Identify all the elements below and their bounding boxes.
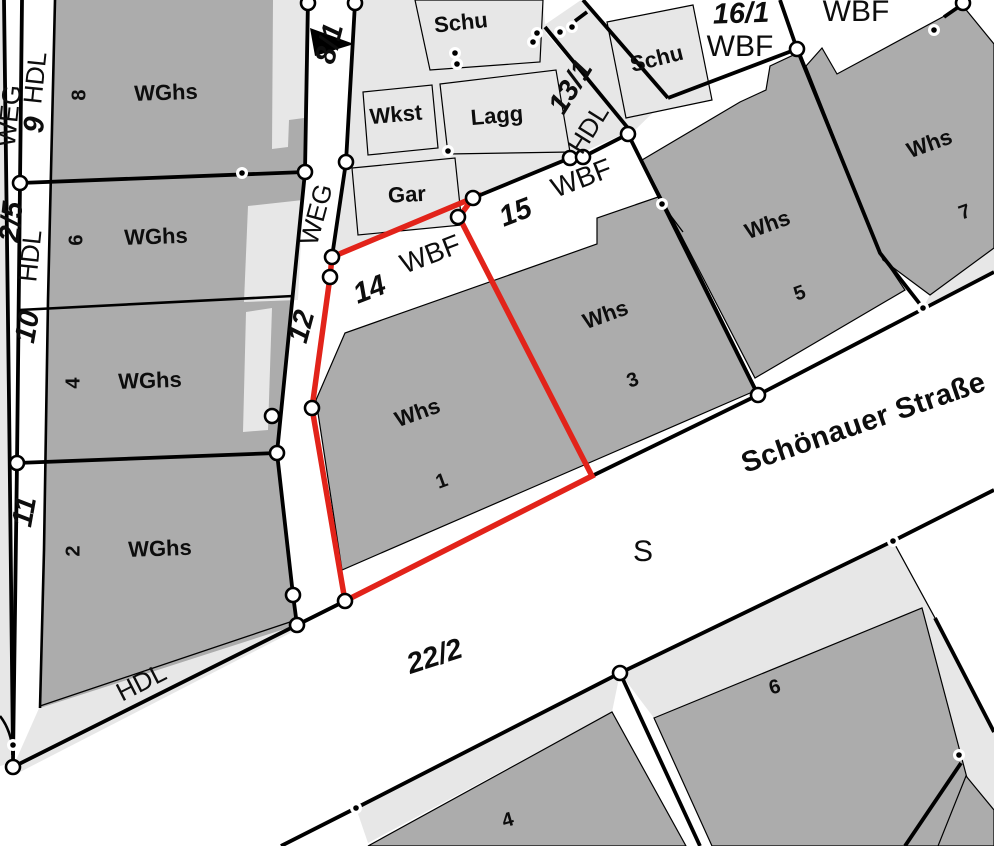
vertex-point bbox=[325, 250, 339, 264]
label-s-street: S bbox=[633, 535, 653, 568]
cadastral-map[interactable]: WEGHDL92/5HDL1011WGhs8WGhs6WGhs4WGhs2WEG… bbox=[0, 0, 994, 846]
vertex-point bbox=[323, 270, 337, 284]
halo-dot bbox=[887, 535, 899, 547]
label-num-11: 11 bbox=[6, 494, 43, 529]
halo-dot bbox=[953, 749, 965, 761]
label-num-16-1: 16/1 bbox=[712, 0, 770, 31]
label-num-10: 10 bbox=[9, 308, 46, 345]
halo-dot bbox=[449, 47, 461, 59]
vertex-point bbox=[613, 666, 627, 680]
halo-dot bbox=[928, 24, 940, 36]
label-num-22-2: 22/2 bbox=[402, 633, 467, 681]
halo-dot bbox=[531, 27, 543, 39]
label-num-8-1: 8/1 bbox=[309, 20, 350, 67]
label-num-6: 6 bbox=[65, 234, 87, 245]
vertex-point bbox=[751, 388, 765, 402]
label-wghs-6: WGhs bbox=[124, 223, 188, 250]
vertex-point bbox=[466, 191, 480, 205]
halo-dot bbox=[656, 198, 668, 210]
halo-dot bbox=[566, 21, 578, 33]
vertex-point bbox=[305, 401, 319, 415]
vertex-point bbox=[451, 210, 465, 224]
halo-dot bbox=[350, 802, 362, 814]
vertex-point bbox=[298, 165, 312, 179]
label-wbf-14: WBF bbox=[396, 228, 465, 279]
label-num-12: 12 bbox=[282, 307, 321, 346]
label-wghs-2: WGhs bbox=[128, 535, 192, 562]
label-gar: Gar bbox=[387, 181, 427, 208]
vertex-point bbox=[290, 618, 304, 632]
label-wghs-8: WGhs bbox=[134, 79, 198, 106]
label-hdl-left-top: HDL bbox=[17, 50, 52, 105]
label-num-4: 4 bbox=[62, 377, 84, 389]
halo-dot bbox=[236, 167, 248, 179]
label-num-14: 14 bbox=[349, 269, 391, 310]
vertex-point bbox=[621, 127, 635, 141]
vertex-point bbox=[339, 155, 353, 169]
vertex-point bbox=[338, 594, 352, 608]
label-num-2: 2 bbox=[62, 545, 84, 556]
label-street-name: Schönauer Straße bbox=[737, 366, 990, 480]
halo-dot bbox=[7, 739, 19, 751]
halo-dot bbox=[442, 145, 454, 157]
label-hdl-left-mid: HDL bbox=[12, 228, 47, 283]
halo-dot bbox=[917, 302, 929, 314]
halo-dot bbox=[451, 58, 463, 70]
map-stage: WEGHDL92/5HDL1011WGhs8WGhs6WGhs4WGhs2WEG… bbox=[0, 0, 994, 846]
vertex-point bbox=[13, 176, 27, 190]
vertex-point bbox=[286, 588, 300, 602]
halo-dot bbox=[554, 26, 566, 38]
vertex-point bbox=[265, 409, 279, 423]
label-num-9: 9 bbox=[18, 115, 52, 134]
label-wbf-16-1: WBF bbox=[707, 30, 774, 63]
label-wghs-4: WGhs bbox=[118, 367, 182, 394]
label-wbf-top-right: WBF bbox=[823, 0, 890, 28]
vertex-point bbox=[6, 760, 20, 774]
vertex-point bbox=[301, 0, 315, 10]
vertex-point bbox=[790, 42, 804, 56]
label-wkst: Wkst bbox=[369, 100, 424, 130]
vertex-point bbox=[348, 0, 362, 10]
label-lagg: Lagg bbox=[470, 101, 525, 130]
label-num-8: 8 bbox=[68, 89, 90, 100]
label-num-15: 15 bbox=[495, 192, 537, 234]
vertex-point bbox=[270, 446, 284, 460]
vertex-point bbox=[10, 456, 24, 470]
vertex-point bbox=[956, 0, 970, 10]
